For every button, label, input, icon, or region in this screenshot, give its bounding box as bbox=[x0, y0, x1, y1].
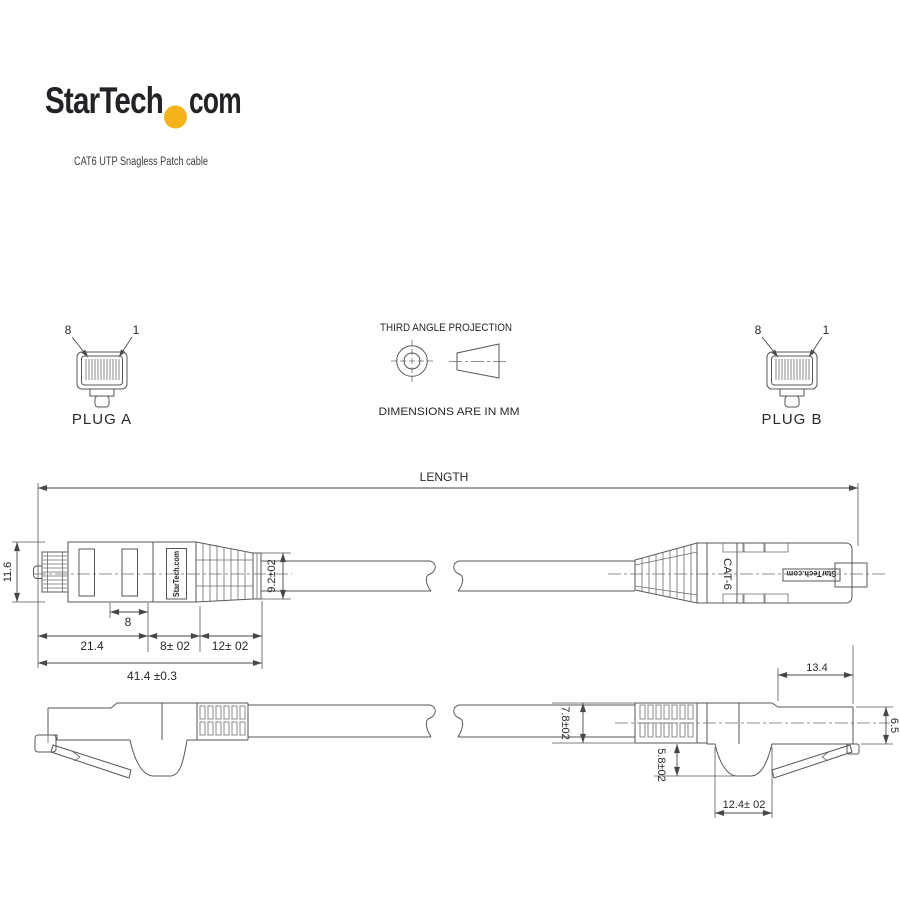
plug-b-pin8-label: 8 bbox=[755, 323, 762, 337]
length-label: LENGTH bbox=[420, 470, 469, 484]
boot-inner-lines-right bbox=[635, 552, 697, 595]
latch-arm bbox=[51, 745, 131, 778]
profile-top-edge bbox=[48, 703, 248, 708]
strain-relief-boot bbox=[196, 542, 253, 602]
plug-b-caption: PLUG B bbox=[761, 411, 822, 428]
plug-a-latch-tab bbox=[95, 396, 109, 407]
d414-label: 41.4 ±0.3 bbox=[127, 669, 177, 683]
boot-hump-right bbox=[707, 744, 853, 776]
boot-ribs bbox=[203, 543, 245, 602]
plug-a-latch-neck bbox=[90, 389, 114, 396]
product-subtitle: CAT6 UTP Snagless Patch cable bbox=[74, 156, 208, 168]
header: StarTech com CAT6 UTP Snagless Patch cab… bbox=[45, 80, 241, 168]
drawing-sheet: StarTech com CAT6 UTP Snagless Patch cab… bbox=[0, 0, 900, 900]
brand-logo-text: StarTech bbox=[45, 80, 163, 121]
d8-label: 8 bbox=[125, 615, 132, 629]
d12t-label: 12± 02 bbox=[212, 639, 249, 653]
plug-b-outer-shell bbox=[767, 352, 817, 389]
profile-bottom-front bbox=[48, 735, 130, 740]
plug-b-pin1-label: 1 bbox=[823, 323, 830, 337]
d8t-label: 8± 02 bbox=[160, 639, 190, 653]
body-window-1 bbox=[79, 549, 95, 596]
cable-break-right-bottom bbox=[454, 705, 463, 737]
plug-a-pin1-label: 1 bbox=[133, 323, 140, 337]
plug-a-front-view: 8 1 PLUG A bbox=[65, 323, 140, 428]
d58-label: 5.8±02 bbox=[655, 748, 667, 782]
units-note: DIMENSIONS ARE IN MM bbox=[379, 406, 520, 418]
boot-hump bbox=[130, 740, 248, 776]
cable-break-left-bottom bbox=[426, 705, 435, 737]
plug-a-outer-shell bbox=[77, 352, 127, 389]
d92-label: 9.2±02 bbox=[266, 559, 278, 593]
d214-label: 21.4 bbox=[80, 639, 104, 653]
d78-label: 7.8±02 bbox=[559, 706, 571, 740]
technical-drawing: StarTech com CAT6 UTP Snagless Patch cab… bbox=[0, 0, 900, 900]
cable-break-left bbox=[426, 561, 435, 591]
profile-rib-slots bbox=[200, 706, 245, 735]
cable-lines-bottom bbox=[248, 705, 635, 737]
brand-logo-tld: com bbox=[189, 80, 241, 121]
right-connector-top-view: CAT-6 StarTech.com bbox=[608, 543, 888, 603]
cable-side-view bbox=[248, 705, 635, 737]
boot-end-cap-right bbox=[697, 543, 707, 603]
plug-b-latch-tab bbox=[785, 396, 799, 407]
plug-b-front-view: 8 1 PLUG B bbox=[755, 323, 830, 428]
h116-label: 11.6 bbox=[2, 562, 14, 583]
boot-inner-lines bbox=[196, 560, 253, 586]
left-connector-top-view: StarTech.com bbox=[33, 542, 292, 602]
body-window-2 bbox=[122, 549, 138, 596]
plug-a-contacts bbox=[86, 359, 119, 380]
d134-label: 13.4 bbox=[806, 662, 827, 674]
projection-cone-symbol bbox=[457, 344, 499, 378]
cable-break-right bbox=[454, 561, 463, 591]
contact-stripes bbox=[43, 552, 67, 592]
plug-b-latch-neck bbox=[780, 389, 804, 396]
latch-foot bbox=[35, 735, 56, 752]
logo-dot-icon bbox=[164, 106, 187, 129]
latch-arm-right bbox=[772, 745, 852, 778]
plug-a-pin8-label: 8 bbox=[65, 323, 72, 337]
plug-a-pin8-leader bbox=[72, 337, 88, 357]
left-connector-side-view bbox=[35, 703, 248, 778]
side-view-dimensions: 7.8±02 5.8±02 12.4± 02 6.5 bbox=[552, 703, 900, 818]
cable-lines bbox=[261, 561, 635, 591]
d124-label: 12.4± 02 bbox=[723, 799, 766, 811]
plug-b-contacts bbox=[776, 359, 809, 380]
plug-b-pin8-leader bbox=[762, 337, 778, 357]
projection-title: THIRD ANGLE PROJECTION bbox=[380, 322, 512, 334]
projection-note: THIRD ANGLE PROJECTION DIMENSIONS ARE IN… bbox=[379, 322, 520, 418]
plug-a-caption: PLUG A bbox=[72, 411, 132, 428]
cable-top-view bbox=[261, 561, 635, 591]
right-plug-brand-marking: StarTech.com bbox=[787, 569, 837, 578]
profile-rib-slots-right bbox=[640, 705, 693, 737]
d65-label: 6.5 bbox=[888, 718, 900, 733]
